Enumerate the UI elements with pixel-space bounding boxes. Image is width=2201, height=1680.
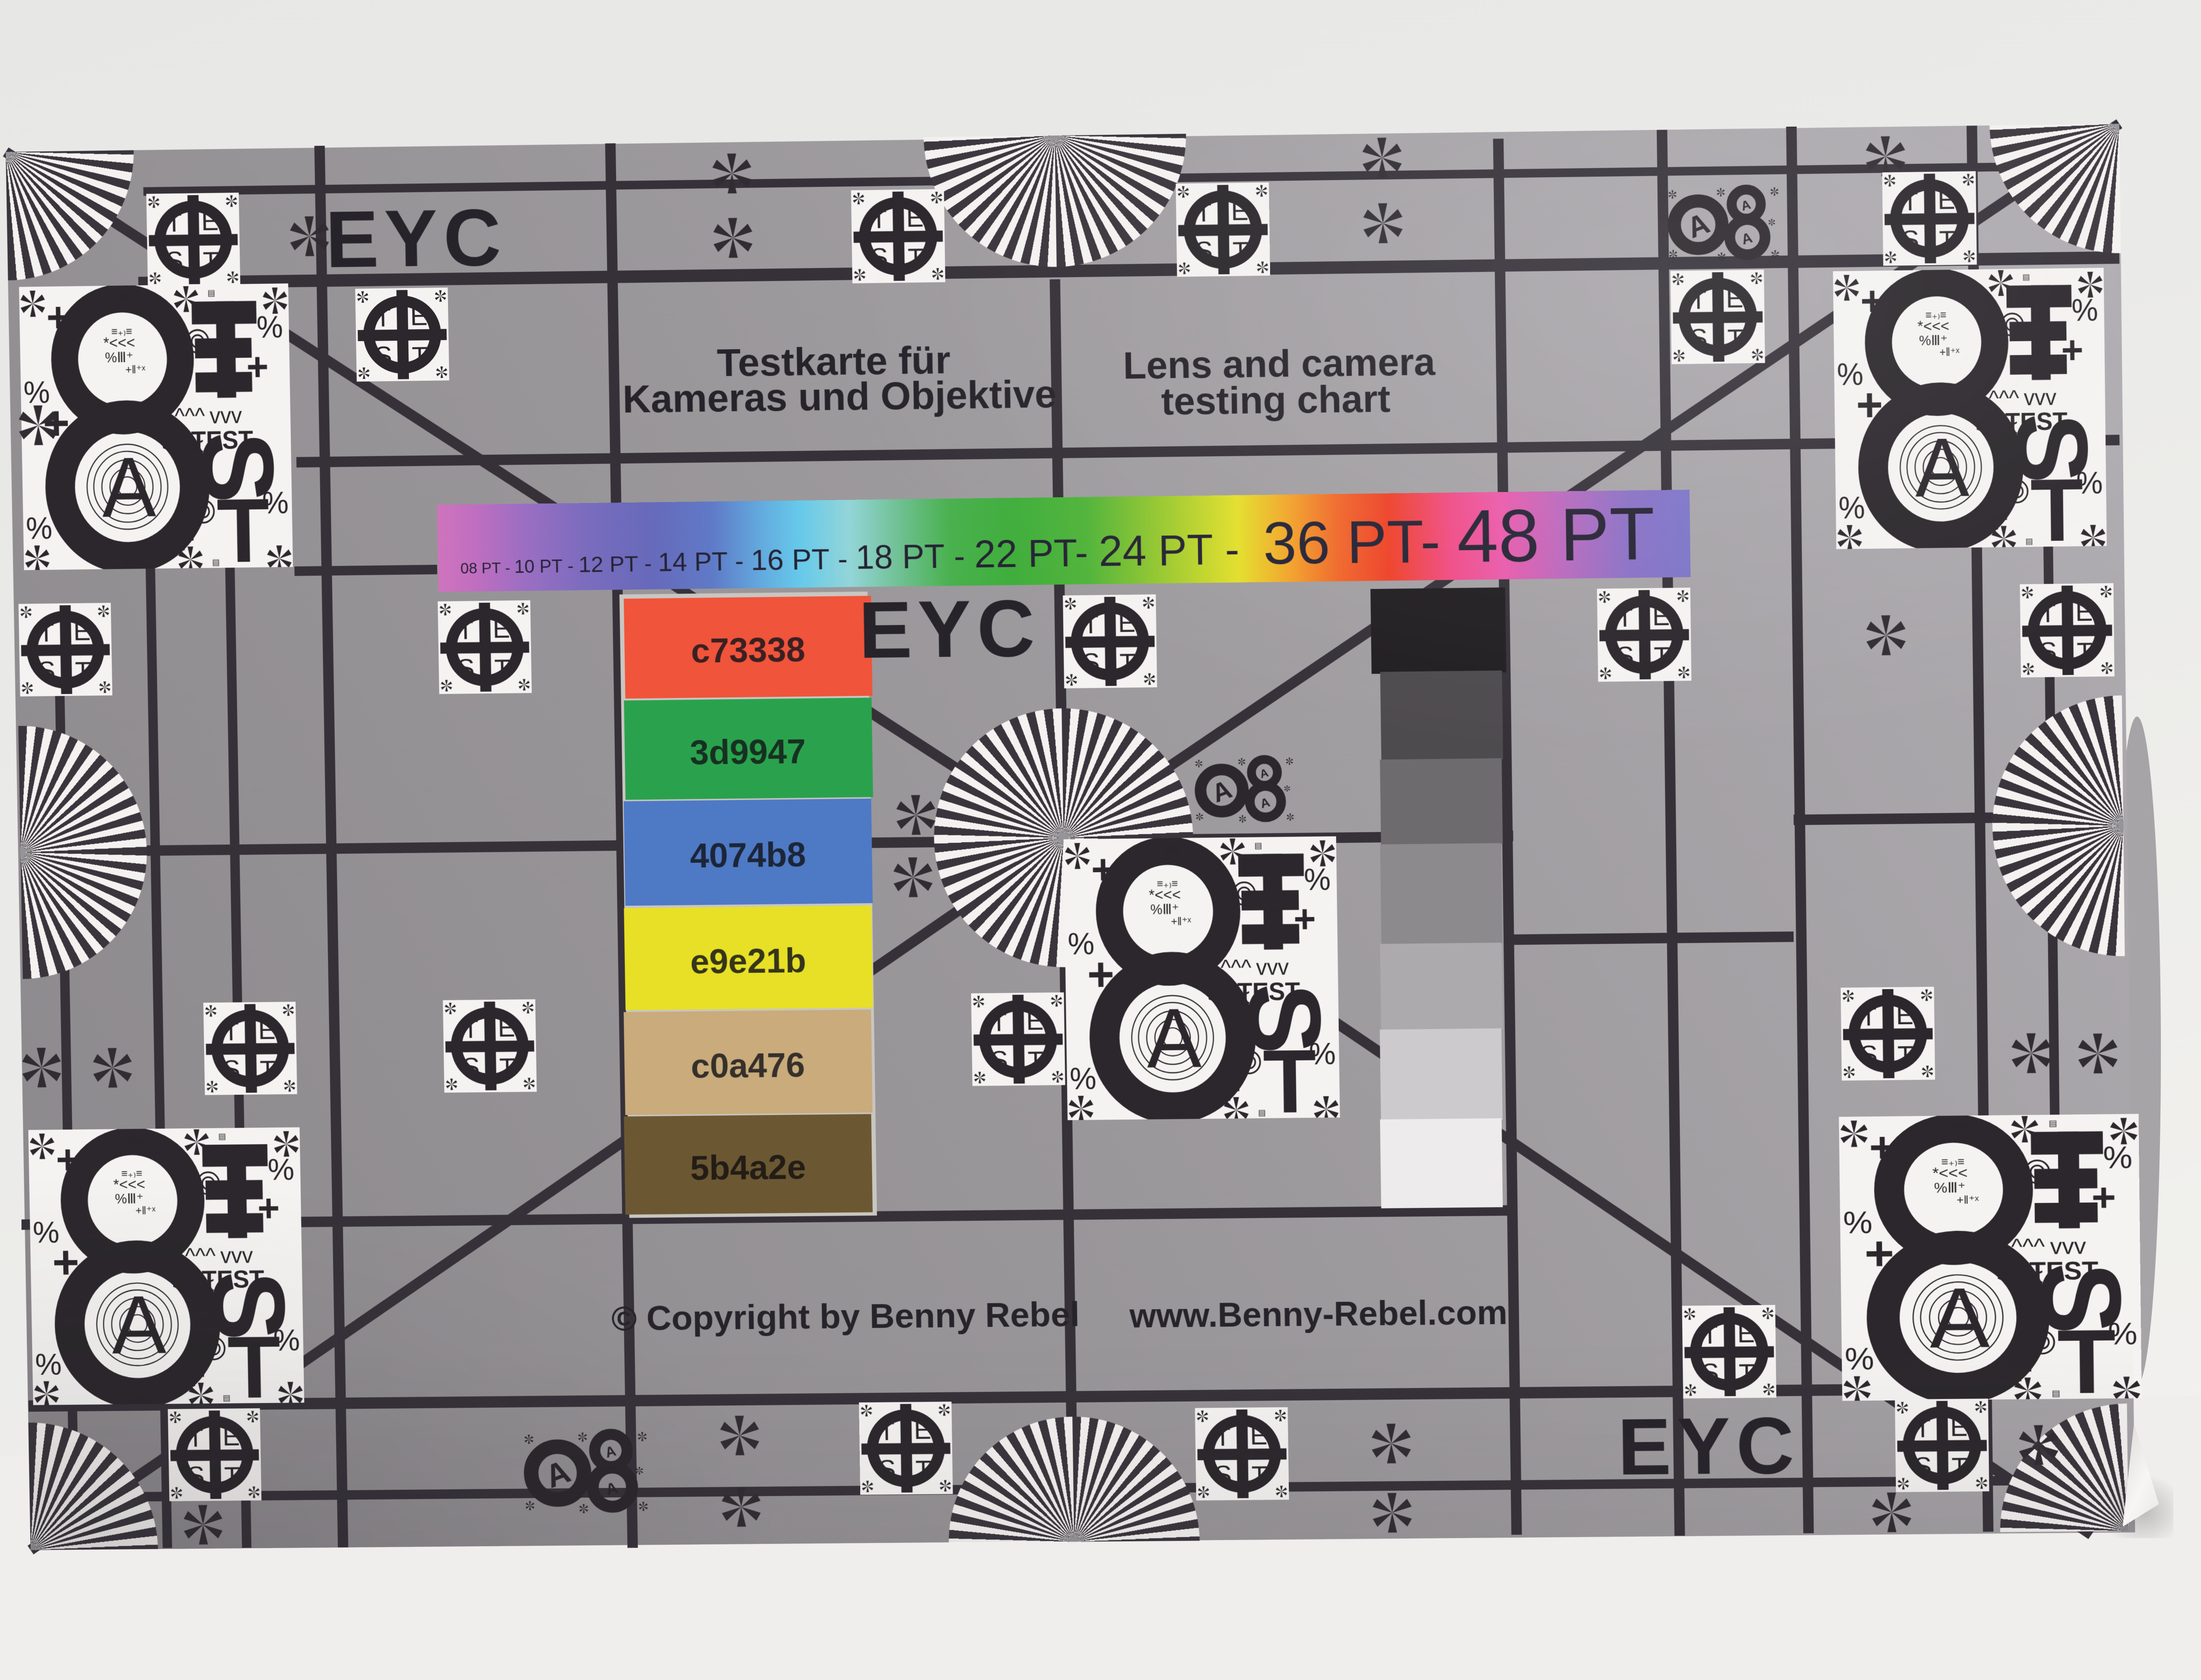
svg-text:E: E [1737,1319,1755,1348]
svg-text:T: T [203,246,219,276]
svg-text:S: S [991,1046,1008,1075]
svg-text:≡₊₎≡: ≡₊₎≡ [1925,308,1946,321]
svg-text:T: T [1027,1046,1044,1075]
svg-text:S: S [1690,323,1708,353]
svg-text:T: T [1727,324,1743,353]
svg-text:≡₊₎≡: ≡₊₎≡ [111,325,132,338]
svg-text:T: T [908,243,924,273]
svg-text:S: S [1214,1460,1232,1489]
svg-text:E: E [498,1013,515,1042]
svg-text:E: E [410,301,427,331]
svg-text:S: S [1195,236,1213,266]
svg-text:%: % [32,1216,60,1250]
svg-text:≡₊₎≡: ≡₊₎≡ [1157,877,1178,890]
svg-text:+‖⁺ˣ: +‖⁺ˣ [1171,915,1191,928]
svg-text:S: S [457,653,475,683]
svg-text:A: A [1740,197,1752,214]
svg-text:T: T [223,1017,239,1046]
svg-text:%: % [1309,1037,1336,1071]
svg-text:+: + [1211,884,1236,931]
svg-text:T: T [915,1455,931,1484]
svg-text:T: T [458,616,474,645]
svg-text:E: E [1937,185,1955,215]
svg-text:E: E [1231,196,1249,226]
svg-text:E: E [1726,284,1743,313]
svg-text:T: T [1120,648,1136,678]
svg-text:T: T [1690,285,1707,315]
svg-text:A: A [1914,421,1970,515]
svg-text:<<<: <<< [1207,984,1250,1012]
svg-text:<<<: <<< [161,432,204,461]
svg-text:%: % [1838,491,1865,525]
svg-text:S: S [1082,648,1100,677]
svg-text:E: E [1896,1001,1913,1030]
svg-text:E: E [201,206,219,236]
svg-text:S: S [187,1461,205,1490]
svg-text:S: S [166,246,183,276]
svg-text:S: S [2039,637,2057,666]
svg-text:T: T [2077,637,2093,667]
svg-text:vvv: vvv [1256,954,1289,980]
svg-text:T: T [1914,1414,1931,1443]
svg-text:▤: ▤ [2022,272,2030,282]
svg-text:E: E [914,1415,931,1445]
svg-text:▤▤: ▤▤ [1950,1122,1967,1132]
svg-text:E: E [1118,608,1135,638]
svg-text:vvv: vvv [2050,1234,2087,1260]
svg-text:^^^: ^^^ [185,1243,216,1268]
svg-text:E: E [1250,1421,1268,1450]
svg-text:T: T [1232,236,1249,266]
svg-text:▤: ▤ [218,1131,226,1141]
svg-text:T: T [1702,1320,1718,1349]
svg-text:%: % [267,1153,295,1187]
svg-text:▤: ▤ [212,557,220,567]
svg-text:S: S [1701,1358,1719,1387]
svg-text:+: + [2061,328,2083,372]
svg-text:T: T [1860,1002,1877,1032]
svg-text:%: % [256,310,283,345]
svg-text:S: S [1902,225,1919,255]
svg-text:T: T [375,303,391,332]
svg-text:E: E [1652,601,1670,631]
svg-text:E: E [1026,1006,1044,1036]
svg-text:T: T [1215,1422,1231,1451]
svg-text:▤: ▤ [2025,537,2033,546]
svg-text:S: S [878,1455,896,1484]
svg-text:A: A [1259,766,1270,781]
svg-text:+: + [1869,1124,1896,1171]
svg-text:T: T [991,1007,1007,1037]
svg-text:▤▤: ▤▤ [123,558,139,568]
svg-text:+: + [175,1174,200,1220]
svg-text:<<<: <<< [172,1271,215,1299]
svg-text:A: A [604,1478,620,1499]
svg-text:+: + [46,293,70,341]
svg-text:T: T [499,1053,515,1082]
svg-text:T: T [1251,1461,1268,1490]
svg-text:≡₊₎≡: ≡₊₎≡ [1941,1156,1965,1168]
svg-text:T: T [494,654,510,683]
svg-text:S: S [1914,1452,1932,1481]
svg-text:T: T [1951,1452,1967,1481]
svg-text:T: T [871,204,887,234]
svg-text:T: T [1082,610,1099,639]
svg-text:+‖⁺ˣ: +‖⁺ˣ [135,1204,156,1217]
svg-text:%: % [1304,862,1331,897]
svg-text:E: E [223,1422,240,1451]
svg-text:▤: ▤ [2049,1118,2057,1128]
svg-text:%: % [2103,1140,2133,1175]
svg-text:T: T [224,1462,240,1491]
svg-text:%: % [2072,293,2098,328]
svg-text:T: T [878,1417,895,1446]
svg-text:T: T [75,656,91,685]
svg-text:E: E [73,617,91,646]
svg-text:S: S [374,341,392,371]
svg-text:A: A [1146,991,1202,1085]
svg-text:A: A [101,439,157,535]
svg-text:▤: ▤ [1254,841,1262,851]
svg-text:T: T [1939,225,1955,255]
svg-text:^^^: ^^^ [1220,954,1251,980]
svg-text:T: T [412,342,428,371]
svg-text:S: S [462,1052,480,1081]
svg-text:T: T [1739,1359,1755,1388]
svg-text:▤▤: ▤▤ [1933,276,1948,286]
svg-text:%: % [1843,1205,1872,1241]
svg-text:%: % [2108,1316,2137,1351]
svg-text:E: E [1950,1412,1968,1442]
svg-text:S: S [38,656,55,685]
svg-text:S: S [223,1055,240,1084]
svg-text:T: T [462,1015,479,1044]
svg-text:▤▤: ▤▤ [1936,538,1952,547]
svg-text:vvv: vvv [220,1242,253,1268]
svg-text:▤▤: ▤▤ [133,1394,149,1403]
svg-text:T: T [166,208,182,237]
svg-text:+: + [1860,278,1884,325]
svg-text:▤▤: ▤▤ [1165,844,1180,854]
svg-text:▤▤: ▤▤ [128,1135,144,1145]
svg-text:A: A [603,1443,618,1461]
svg-text:T: T [1902,187,1918,216]
svg-text:E: E [906,203,924,233]
svg-text:%: % [1845,1341,1874,1377]
svg-text:S: S [870,243,888,272]
svg-text:+: + [1293,897,1316,941]
svg-text:+: + [257,1187,280,1230]
svg-text:▤: ▤ [1258,1108,1266,1117]
svg-text:E: E [2075,597,2093,627]
svg-text:%: % [1068,927,1095,962]
svg-text:T: T [259,1055,276,1084]
svg-text:E: E [258,1016,276,1045]
svg-text:vvv: vvv [2024,385,2057,410]
svg-text:%: % [262,485,288,520]
svg-text:T: T [1196,198,1212,227]
svg-text:T: T [1897,1040,1913,1070]
svg-text:%: % [1069,1061,1097,1096]
svg-text:%: % [2076,466,2103,500]
svg-text:S: S [1616,641,1634,671]
svg-text:T: T [2040,599,2056,628]
svg-text:▤▤: ▤▤ [1168,1108,1184,1118]
svg-text:%: % [35,1348,62,1382]
svg-text:+: + [55,1136,80,1183]
svg-text:A: A [1259,795,1271,811]
svg-text:+: + [1091,846,1115,893]
svg-text:▤: ▤ [223,1393,230,1402]
svg-text:T: T [1617,603,1633,632]
svg-text:E: E [492,614,510,643]
svg-text:T: T [1654,642,1670,671]
svg-text:A: A [1740,230,1754,248]
svg-text:T: T [38,618,54,647]
svg-text:≡₊₎≡: ≡₊₎≡ [121,1167,143,1180]
svg-text:S: S [1860,1040,1878,1070]
svg-text:T: T [187,1423,203,1453]
svg-text:+: + [2001,1162,2028,1209]
svg-text:^^^: ^^^ [2011,1234,2045,1260]
svg-text:%: % [26,511,53,546]
svg-text:+: + [2091,1175,2116,1220]
svg-text:+‖⁺ˣ: +‖⁺ˣ [1956,1194,1979,1207]
